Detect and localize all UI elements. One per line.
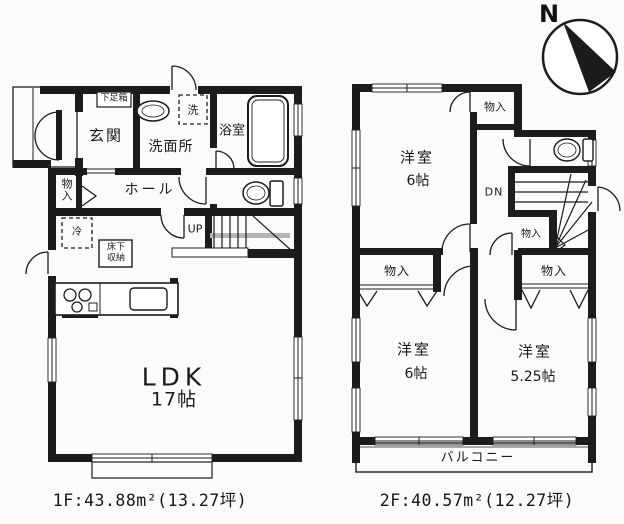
label-closet-top-2f: 物入	[484, 102, 506, 113]
toilet-door-icon-2f	[503, 139, 530, 166]
floorplan-page: 下足箱 玄関 洗 洗面所 浴室 物入 ホール UP 冷 床下 収納 LDK 17…	[0, 0, 624, 524]
label-stairs-down: DN	[485, 187, 504, 198]
label-closet-stairs-2f: 物入	[521, 230, 541, 240]
bath-door-icon	[216, 151, 234, 169]
caption-1f: 1F:43.88m²(13.27坪)	[53, 487, 247, 511]
top-room-upper-door-icon	[450, 92, 470, 112]
label-room-bottom-right: 洋室	[518, 345, 552, 360]
label-closet-left-2f: 物入	[384, 265, 410, 277]
closet-door-mark-1f	[82, 186, 96, 206]
label-stairs-up: UP	[188, 224, 203, 235]
exterior-door-icon-2f	[598, 187, 620, 211]
label-balcony: バルコニー	[441, 452, 516, 465]
label-underfloor-storage: 床下 収納	[107, 242, 125, 263]
label-room-bottom-left: 洋室	[397, 343, 431, 358]
label-bathroom: 浴室	[219, 125, 245, 138]
room-bl-door-icon	[444, 266, 474, 296]
compass-north-label: N	[539, 0, 559, 28]
sink-icon	[130, 288, 167, 310]
terrace-outline-1f	[92, 462, 212, 478]
compass-icon	[543, 20, 617, 94]
entrance-door-icon	[35, 110, 62, 160]
label-washroom: 洗面所	[149, 140, 194, 154]
label-hall: ホール	[125, 183, 176, 197]
toilet-icon-1f	[243, 181, 283, 206]
label-washer: 洗	[188, 105, 199, 116]
label-room-bottom-right-size: 5.25帖	[510, 370, 555, 384]
label-ldk: LDK	[142, 365, 207, 390]
label-closet-right-2f: 物入	[541, 265, 567, 277]
washroom-door-icon	[179, 177, 206, 204]
washbasin-icon	[137, 101, 169, 121]
kitchen-counter-icon	[55, 283, 178, 315]
floorplan-drawing	[0, 0, 624, 524]
bathtub-icon	[248, 96, 288, 166]
label-room-bottom-left-size: 6帖	[405, 367, 428, 381]
label-entrance: 玄関	[89, 129, 123, 144]
toilet-icon-2f	[554, 139, 593, 161]
plan-1f	[13, 66, 302, 478]
label-closet-1f: 物入	[59, 179, 75, 204]
label-room-top: 洋室	[400, 151, 434, 166]
top-room-lower-door-icon	[442, 224, 470, 252]
label-underfloor-storage-line1: 床下	[107, 242, 125, 253]
label-underfloor-storage-line2: 収納	[107, 253, 125, 264]
room-br-door-icon	[485, 299, 516, 330]
kitchen-back-door-icon	[26, 252, 48, 274]
label-shoe-cabinet: 下足箱	[100, 95, 127, 104]
stairs-door-icon	[161, 215, 184, 238]
plan-2f	[352, 84, 620, 472]
label-room-top-size: 6帖	[407, 174, 430, 188]
stair-hall-door-icon-2f	[490, 233, 512, 255]
label-refrigerator: 冷	[72, 228, 82, 238]
label-ldk-size: 17帖	[151, 391, 197, 410]
caption-2f: 2F:40.57m²(12.27坪)	[380, 487, 574, 511]
